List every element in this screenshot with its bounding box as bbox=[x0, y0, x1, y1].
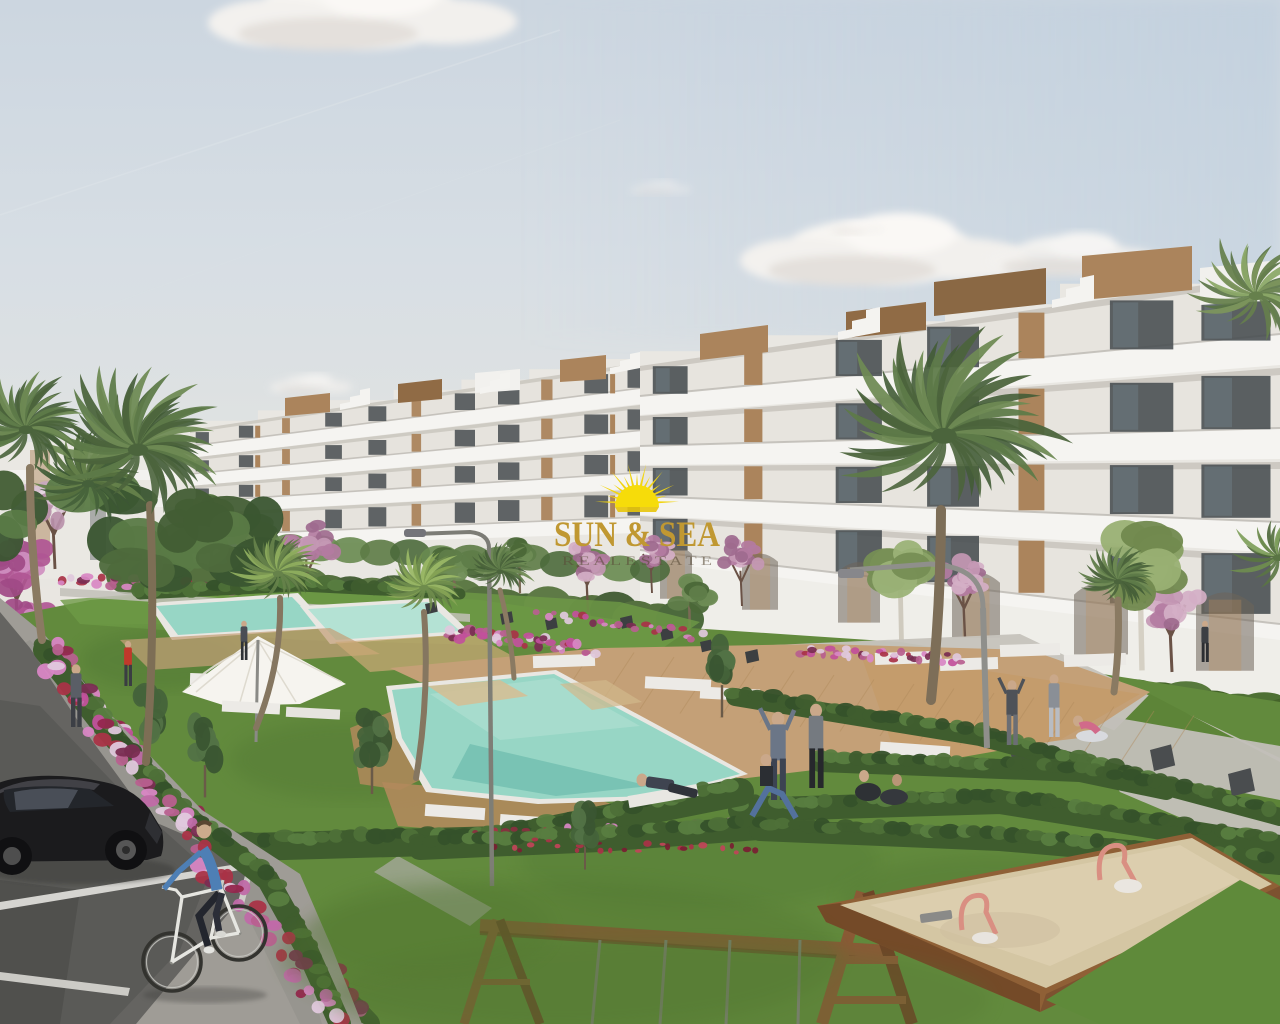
svg-text:R E A L E S T A T E: R E A L E S T A T E bbox=[562, 553, 712, 568]
svg-text:SUN & SEA: SUN & SEA bbox=[554, 514, 720, 554]
